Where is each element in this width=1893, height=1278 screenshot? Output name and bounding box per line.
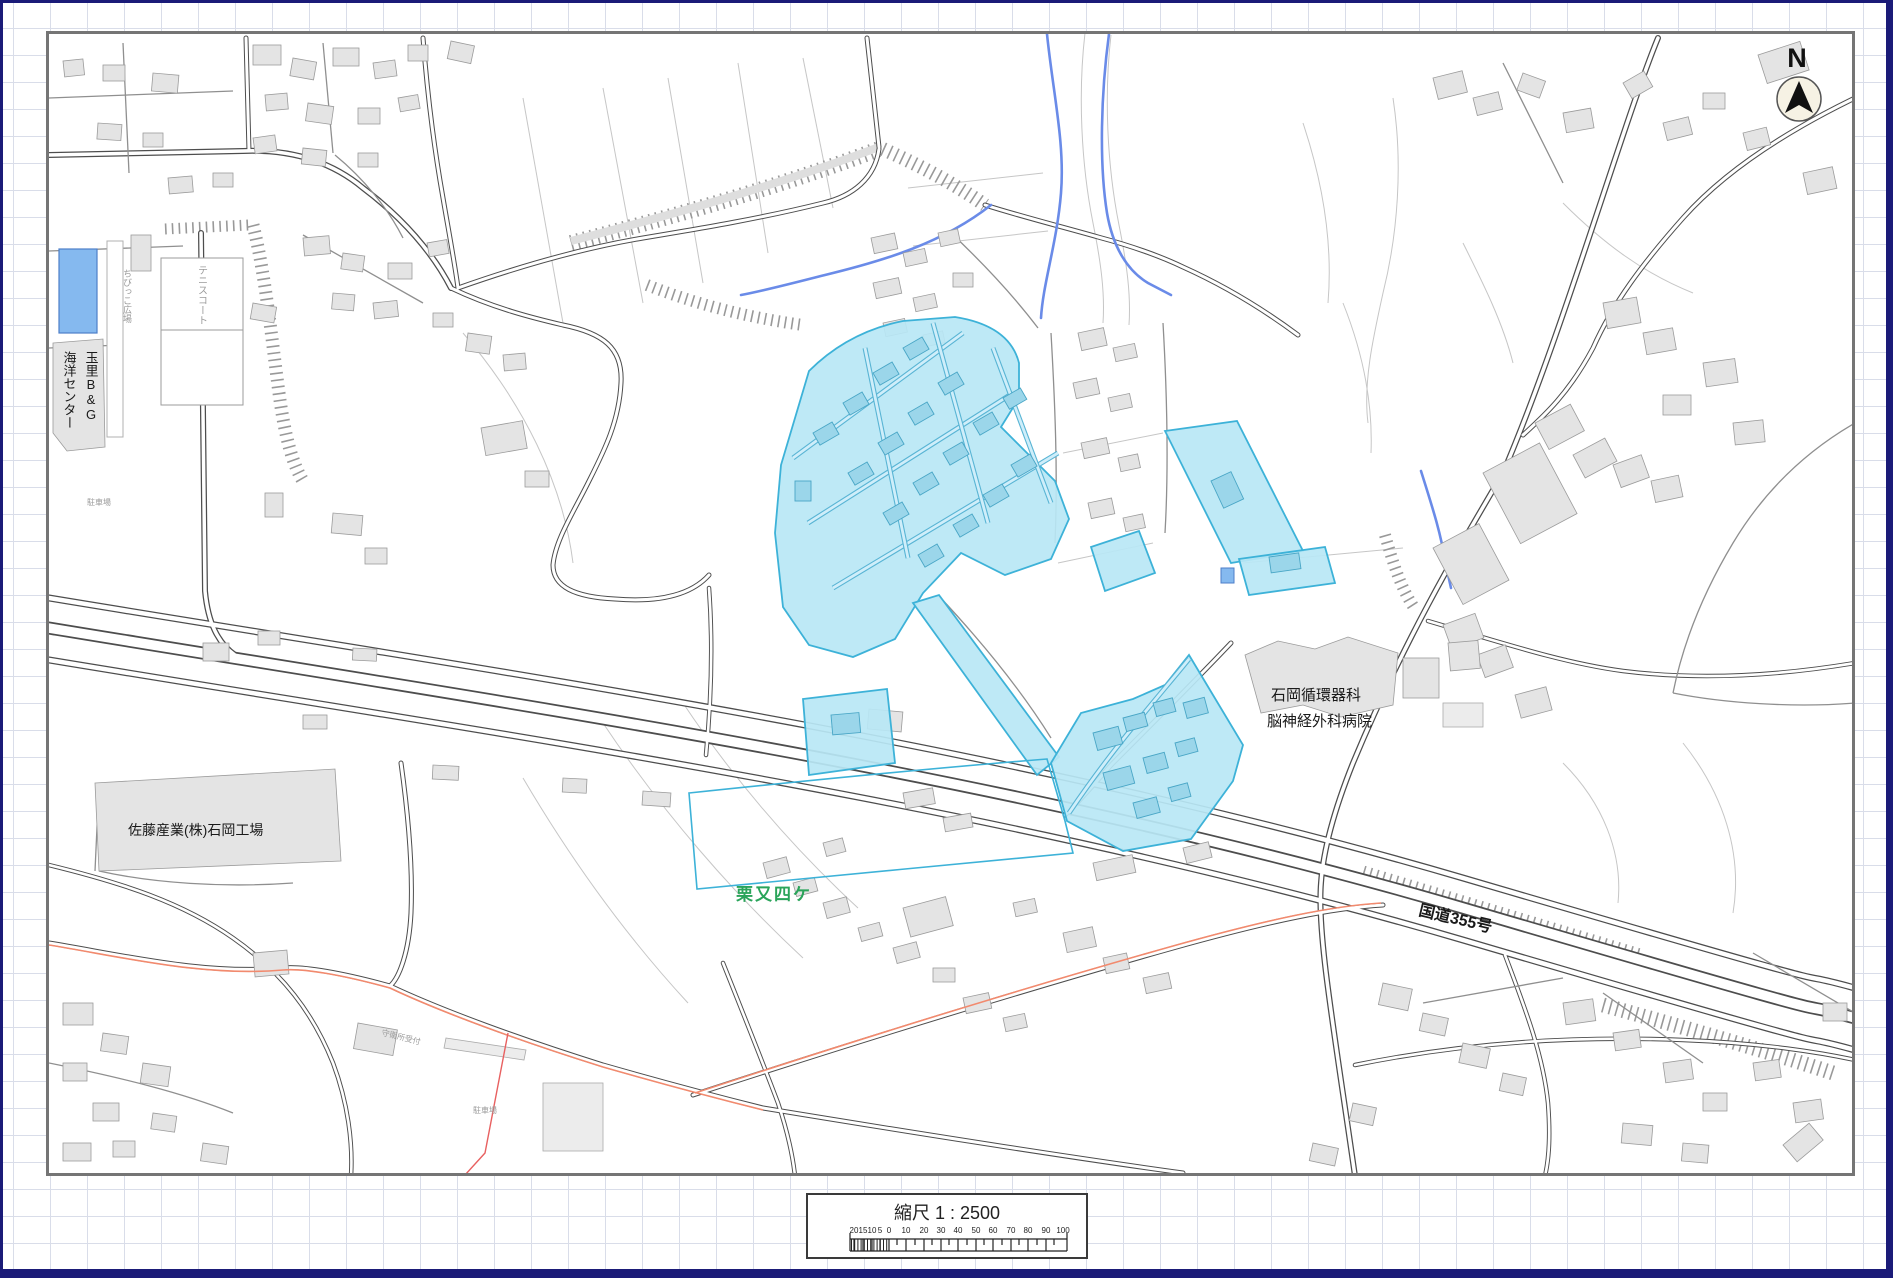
parking-label-b: 駐車場: [473, 1105, 497, 1115]
svg-text:80: 80: [1024, 1226, 1033, 1235]
embankment-hatch-layer: [165, 147, 1833, 1073]
tennis-court-label: テニスコート: [196, 265, 207, 325]
hospital-label-line2: 脳神経外科病院: [1267, 712, 1372, 730]
map-viewer-window: 玉里B&G 海洋センター テニスコート ちびっこ広場 駐車場 駐車場 守衛所受付…: [0, 0, 1893, 1278]
svg-text:50: 50: [972, 1226, 981, 1235]
svg-text:20: 20: [920, 1226, 929, 1235]
swimming-pool: [59, 249, 97, 333]
svg-text:5: 5: [878, 1226, 883, 1235]
scale-title: 縮尺 1 : 2500: [894, 1203, 1000, 1223]
city-map: 玉里B&G 海洋センター テニスコート ちびっこ広場 駐車場 駐車場 守衛所受付…: [49, 34, 1852, 1173]
scale-ruler: [850, 1233, 1067, 1251]
kids-plaza-label: ちびっこ広場: [122, 269, 132, 324]
scale-bar-box: 縮尺 1 : 2500 20 15 10 5 0 10 20 30 40 50 …: [806, 1193, 1088, 1259]
highlight-zones-layer: [689, 317, 1335, 889]
svg-text:90: 90: [1042, 1226, 1051, 1235]
svg-text:10: 10: [902, 1226, 911, 1235]
highlight-zone-south: [1051, 655, 1243, 851]
district-label: 栗又四ケ: [736, 885, 812, 904]
buildings-layer: [53, 41, 1847, 1166]
water-patch: [1221, 568, 1234, 583]
svg-text:100: 100: [1056, 1226, 1070, 1235]
svg-text:70: 70: [1007, 1226, 1016, 1235]
svg-text:10: 10: [868, 1226, 877, 1235]
parking-label-a: 駐車場: [87, 497, 111, 507]
hospital-building: [1245, 637, 1398, 717]
accent-lines-layer: [49, 903, 1381, 1173]
bg-center-label-line1: 玉里B&G: [84, 351, 99, 422]
minor-roads-layer: [49, 43, 1852, 1113]
scale-tick-labels: 20 15 10 5 0 10 20 30 40 50 60 70 80 90 …: [850, 1226, 1071, 1235]
north-arrow: N: [1766, 39, 1838, 135]
north-letter: N: [1787, 43, 1807, 73]
bg-center-label-line2: 海洋センター: [62, 351, 77, 429]
highlight-zone-small: [1091, 531, 1155, 591]
factory-label: 佐藤産業(株)石岡工場: [128, 822, 263, 838]
svg-text:60: 60: [989, 1226, 998, 1235]
hospital-label-line1: 石岡循環器科: [1271, 687, 1361, 704]
labels-layer: 玉里B&G 海洋センター テニスコート ちびっこ広場 駐車場 駐車場 守衛所受付…: [62, 265, 1495, 1115]
svg-text:0: 0: [887, 1226, 892, 1235]
tennis-court-2: [161, 330, 243, 405]
factory-building: [95, 769, 341, 871]
svg-text:30: 30: [937, 1226, 946, 1235]
svg-text:40: 40: [954, 1226, 963, 1235]
map-frame: 玉里B&G 海洋センター テニスコート ちびっこ広場 駐車場 駐車場 守衛所受付…: [46, 31, 1855, 1176]
